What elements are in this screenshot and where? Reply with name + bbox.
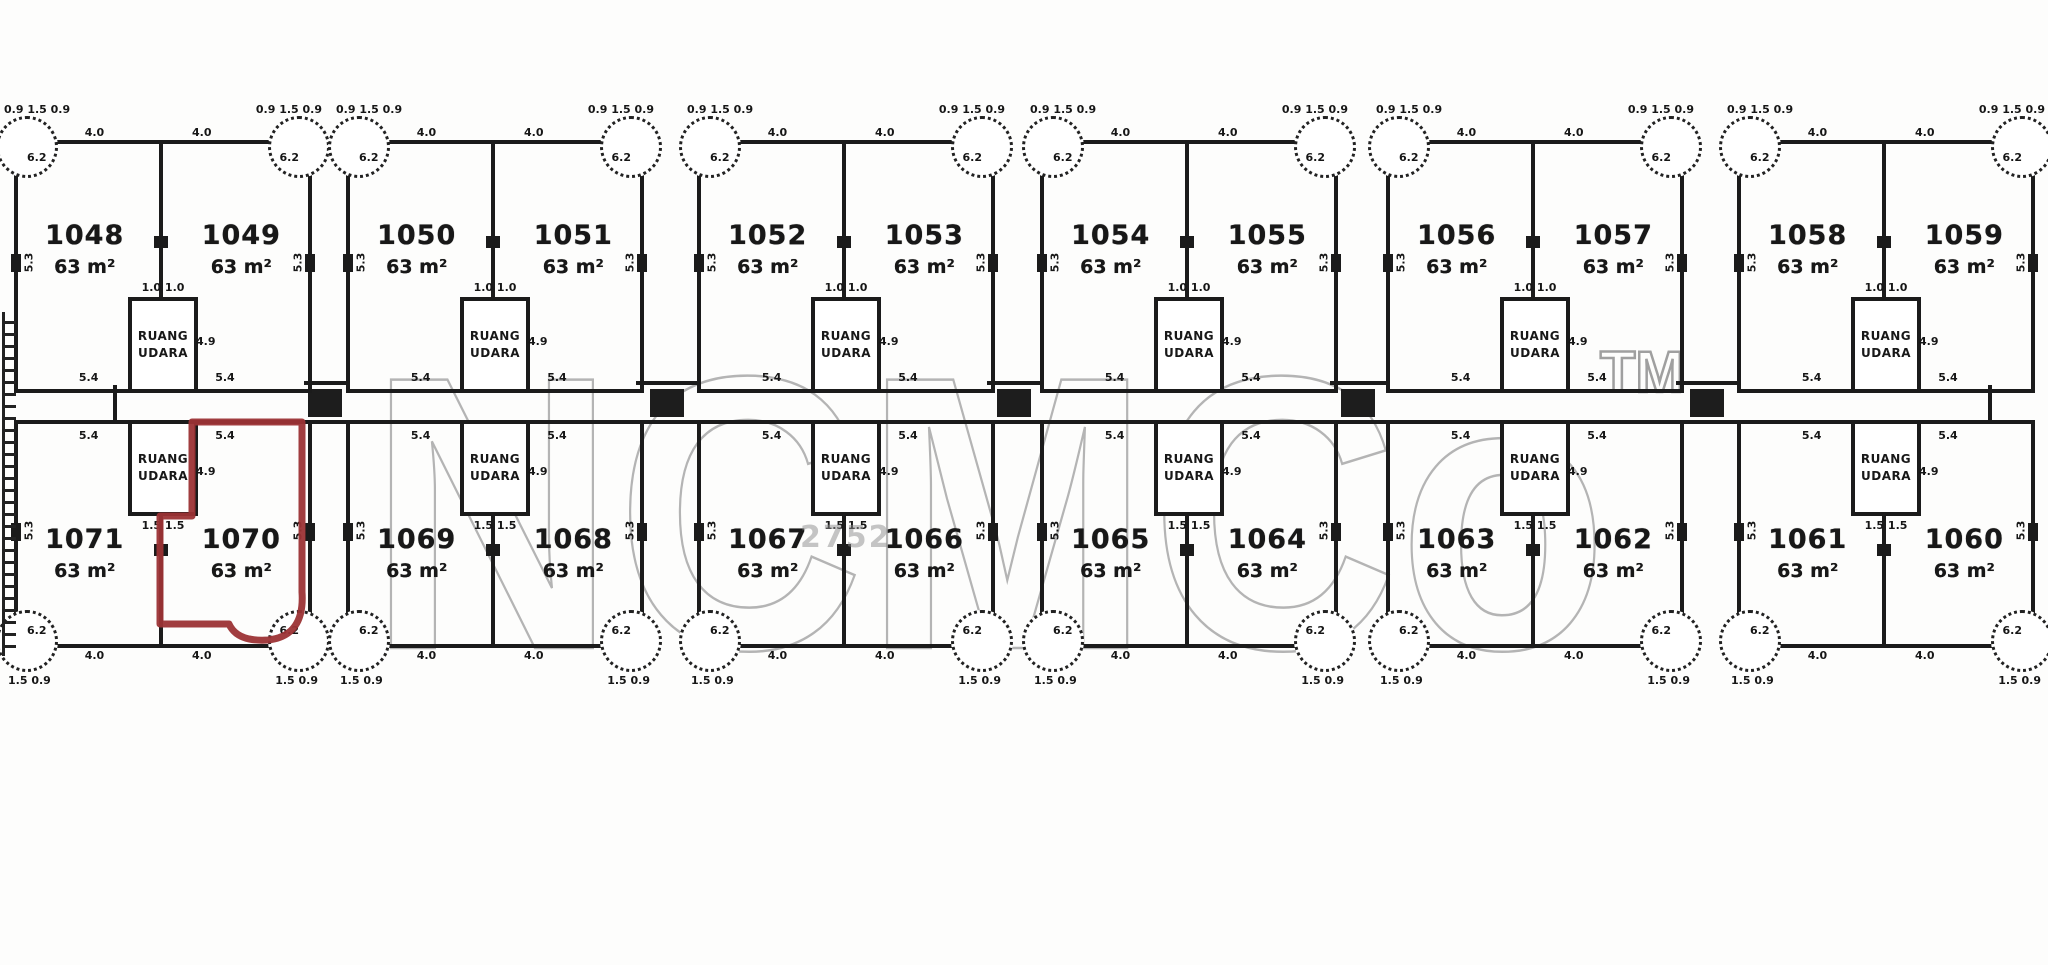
corner-survey-notch: [1991, 610, 2048, 672]
plot-number: 1052: [701, 220, 834, 251]
party-wall-tick: [1180, 236, 1194, 248]
dimension-label: 4.0: [85, 127, 105, 138]
dimension-label: 4.9: [1222, 336, 1242, 347]
party-wall-tick: [1526, 544, 1540, 556]
dimension-label: 4.0: [1915, 127, 1935, 138]
dimension-label: 0.9 1.5 0.9: [4, 104, 70, 115]
dimension-label: 5.4: [1105, 372, 1125, 383]
corner-survey-notch: [1022, 610, 1084, 672]
plot-area: 63 m²: [1390, 256, 1523, 278]
plot-pair: 0.9 1.5 0.9 0.9 1.5 0.9 1.5 0.9 1.5 0.9 …: [14, 140, 312, 393]
dimension-label: 4.0: [524, 127, 544, 138]
air-space-label-line1: RUANG: [138, 328, 188, 345]
plot-number: 1063: [1390, 524, 1523, 555]
dimension-label: 1.5 0.9: [8, 675, 51, 686]
plot-number: 1067: [701, 524, 834, 555]
party-wall-tick: [837, 544, 851, 556]
dimension-label: 1.5 0.9: [275, 675, 318, 686]
plot-number: 1062: [1547, 524, 1680, 555]
dimension-label: 5.4: [1105, 430, 1125, 441]
dimension-label: 6.2: [1750, 152, 1770, 163]
party-wall-line: [491, 516, 495, 644]
dimension-label: 1.5 0.9: [691, 675, 734, 686]
dimension-label: 4.0: [1564, 650, 1584, 661]
corner-survey-notch: [1719, 116, 1781, 178]
dimension-label: 6.2: [359, 625, 379, 636]
corner-survey-notch: [268, 116, 330, 178]
air-space-label-line2: UDARA: [1861, 468, 1911, 485]
plot-area: 63 m²: [1741, 560, 1874, 582]
dimension-label: 5.4: [1587, 430, 1607, 441]
plot-area: 63 m²: [1547, 560, 1680, 582]
air-space-label-line2: UDARA: [821, 468, 871, 485]
dimension-label: 0.9 1.5 0.9: [1376, 104, 1442, 115]
dimension-label: 5.4: [898, 430, 918, 441]
dimension-label: 6.2: [710, 625, 730, 636]
plot-pair: 0.9 1.5 0.9 0.9 1.5 0.9 1.5 0.9 1.5 0.9 …: [1737, 420, 2035, 648]
highlight-path: [160, 422, 302, 640]
air-space-label-line1: RUANG: [1164, 328, 1214, 345]
dimension-label: 5.4: [215, 372, 235, 383]
plot-pair: 0.9 1.5 0.9 0.9 1.5 0.9 1.5 0.9 1.5 0.9 …: [346, 140, 644, 393]
dimension-label: 1.0 1.0: [142, 282, 185, 293]
plot-number: 1056: [1390, 220, 1523, 251]
dimension-label: 1.5 0.9: [340, 675, 383, 686]
party-wall-tick: [1877, 544, 1891, 556]
dimension-label: 5.4: [1938, 372, 1958, 383]
dimension-label: 5.4: [1241, 372, 1261, 383]
dimension-label: 4.0: [1218, 650, 1238, 661]
corner-survey-notch: [951, 116, 1013, 178]
party-wall-line: [491, 144, 495, 297]
plot-number: 1060: [1898, 524, 2031, 555]
dimension-label: 4.0: [1111, 127, 1131, 138]
party-wall-tick: [486, 544, 500, 556]
air-space-label-line2: UDARA: [1510, 345, 1560, 362]
dimension-label: 4.0: [417, 650, 437, 661]
air-space-label-line2: UDARA: [138, 345, 188, 362]
dimension-label: 4.0: [1457, 650, 1477, 661]
dimension-label: 1.0 1.0: [1168, 282, 1211, 293]
dimension-label: 6.2: [1399, 152, 1419, 163]
dimension-label: 5.4: [1802, 430, 1822, 441]
dimension-label: 6.2: [1306, 152, 1326, 163]
dimension-label: 5.4: [1587, 372, 1607, 383]
party-wall-tick: [154, 236, 168, 248]
dimension-label: 6.2: [963, 625, 983, 636]
dimension-label: 4.0: [1218, 127, 1238, 138]
dimension-label: 5.4: [1451, 430, 1471, 441]
plot-pair: 0.9 1.5 0.9 0.9 1.5 0.9 1.5 0.9 1.5 0.9 …: [1737, 140, 2035, 393]
air-space-label-line2: UDARA: [1164, 468, 1214, 485]
dimension-label: 5.4: [1802, 372, 1822, 383]
dimension-label: 6.2: [1652, 625, 1672, 636]
dimension-label: 5.4: [762, 430, 782, 441]
air-space-label-line1: RUANG: [1164, 451, 1214, 468]
plot-pair: 0.9 1.5 0.9 0.9 1.5 0.9 1.5 0.9 1.5 0.9 …: [1040, 140, 1338, 393]
air-space-box: RUANG UDARA: [811, 420, 881, 516]
dimension-label: 4.9: [1919, 336, 1939, 347]
party-wall-line: [842, 516, 846, 644]
party-wall-tick: [837, 236, 851, 248]
dimension-label: 6.2: [2003, 625, 2023, 636]
dimension-label: 6.2: [1053, 152, 1073, 163]
dimension-label: 1.0 1.0: [1865, 282, 1908, 293]
dimension-label: 0.9 1.5 0.9: [939, 104, 1005, 115]
dimension-label: 4.9: [1568, 466, 1588, 477]
party-wall-line: [159, 144, 163, 297]
dimension-label: 4.9: [528, 466, 548, 477]
dimension-label: 6.2: [27, 152, 47, 163]
dimension-label: 1.5 0.9: [607, 675, 650, 686]
dimension-label: 1.0 1.0: [1514, 282, 1557, 293]
plot-area: 63 m²: [858, 560, 991, 582]
dimension-label: 1.5 0.9: [958, 675, 1001, 686]
dimension-label: 4.9: [1222, 466, 1242, 477]
plot-number: 1065: [1044, 524, 1177, 555]
air-space-label-line2: UDARA: [1510, 468, 1560, 485]
dimension-label: 4.0: [1915, 650, 1935, 661]
dimension-label: 5.4: [762, 372, 782, 383]
air-space-label-line1: RUANG: [1861, 328, 1911, 345]
air-space-label-line2: UDARA: [1861, 345, 1911, 362]
dimension-label: 1.5 0.9: [1998, 675, 2041, 686]
corner-survey-notch: [600, 116, 662, 178]
party-wall-line: [1531, 144, 1535, 297]
dimension-label: 6.2: [612, 625, 632, 636]
dimension-label: 0.9 1.5 0.9: [1727, 104, 1793, 115]
corner-survey-notch: [1022, 116, 1084, 178]
air-space-label-line2: UDARA: [470, 345, 520, 362]
plot-area: 63 m²: [507, 256, 640, 278]
dimension-label: 1.5 0.9: [1301, 675, 1344, 686]
air-space-box: RUANG UDARA: [1154, 420, 1224, 516]
dimension-label: 5.4: [898, 372, 918, 383]
dimension-label: 1.0 1.0: [474, 282, 517, 293]
plot-number: 1057: [1547, 220, 1680, 251]
dimension-label: 4.9: [528, 336, 548, 347]
dimension-label: 1.0 1.0: [825, 282, 868, 293]
air-space-label-line2: UDARA: [470, 468, 520, 485]
dimension-label: 5.4: [547, 372, 567, 383]
plot-number: 1054: [1044, 220, 1177, 251]
plot-area: 63 m²: [1390, 560, 1523, 582]
dimension-label: 4.0: [524, 650, 544, 661]
dimension-label: 4.0: [417, 127, 437, 138]
plot-area: 63 m²: [350, 256, 483, 278]
corner-survey-notch: [951, 610, 1013, 672]
plot-number: 1050: [350, 220, 483, 251]
air-space-box: RUANG UDARA: [1851, 420, 1921, 516]
party-wall-tick: [486, 236, 500, 248]
dimension-label: 6.2: [1306, 625, 1326, 636]
dimension-label: 0.9 1.5 0.9: [1282, 104, 1348, 115]
air-space-box: RUANG UDARA: [128, 297, 198, 393]
dimension-label: 4.9: [1919, 466, 1939, 477]
air-space-box: RUANG UDARA: [1500, 420, 1570, 516]
corner-survey-notch: [1640, 116, 1702, 178]
dimension-label: 4.9: [196, 336, 216, 347]
plot-pair: 0.9 1.5 0.9 0.9 1.5 0.9 1.5 0.9 1.5 0.9 …: [1386, 420, 1684, 648]
plot-number: 1053: [858, 220, 991, 251]
plot-area: 63 m²: [1898, 560, 2031, 582]
dimension-label: 6.2: [1399, 625, 1419, 636]
plot-number: 1066: [858, 524, 991, 555]
dimension-label: 5.4: [411, 430, 431, 441]
plot-area: 63 m²: [858, 256, 991, 278]
dimension-label: 4.0: [1808, 650, 1828, 661]
party-wall-tick: [1526, 236, 1540, 248]
dimension-label: 4.0: [875, 127, 895, 138]
plot-number: 1069: [350, 524, 483, 555]
dimension-label: 5.4: [1938, 430, 1958, 441]
dimension-label: 5.4: [411, 372, 431, 383]
corner-survey-notch: [1294, 610, 1356, 672]
plot-area: 63 m²: [507, 560, 640, 582]
air-space-label-line1: RUANG: [470, 328, 520, 345]
plot-area: 63 m²: [1741, 256, 1874, 278]
plot-number: 1068: [507, 524, 640, 555]
corner-survey-notch: [1991, 116, 2048, 178]
plot-area: 63 m²: [1201, 560, 1334, 582]
corner-survey-notch: [0, 116, 58, 178]
plot-area: 63 m²: [1201, 256, 1334, 278]
party-wall-line: [1185, 516, 1189, 644]
plot-pair: 0.9 1.5 0.9 0.9 1.5 0.9 1.5 0.9 1.5 0.9 …: [697, 140, 995, 393]
dimension-label: 4.9: [879, 336, 899, 347]
plot-area: 63 m²: [350, 560, 483, 582]
dimension-label: 0.9 1.5 0.9: [1979, 104, 2045, 115]
dimension-label: 1.5 0.9: [1034, 675, 1077, 686]
dimension-label: 4.9: [879, 466, 899, 477]
dimension-label: 6.2: [612, 152, 632, 163]
plot-pair: 0.9 1.5 0.9 0.9 1.5 0.9 1.5 0.9 1.5 0.9 …: [1386, 140, 1684, 393]
dimension-label: 5.4: [547, 430, 567, 441]
air-space-box: RUANG UDARA: [460, 297, 530, 393]
dimension-label: 0.9 1.5 0.9: [588, 104, 654, 115]
dimension-label: 5.4: [1451, 372, 1471, 383]
corner-survey-notch: [679, 610, 741, 672]
air-space-box: RUANG UDARA: [1851, 297, 1921, 393]
corner-survey-notch: [600, 610, 662, 672]
plot-area: 63 m²: [1044, 560, 1177, 582]
dimension-label: 0.9 1.5 0.9: [256, 104, 322, 115]
corner-survey-notch: [328, 610, 390, 672]
corner-survey-notch: [679, 116, 741, 178]
corner-survey-notch: [1368, 610, 1430, 672]
air-space-box: RUANG UDARA: [1154, 297, 1224, 393]
site-plan-canvas: NCMCo TM 0.9 1.5 0.9 0.9 1.5 0.9 1.5 0.9…: [0, 0, 2048, 965]
dimension-label: 5.4: [1241, 430, 1261, 441]
air-space-label-line1: RUANG: [821, 451, 871, 468]
dimension-label: 4.0: [192, 127, 212, 138]
air-space-label-line1: RUANG: [1861, 451, 1911, 468]
plot-number: 1061: [1741, 524, 1874, 555]
dimension-label: 5.4: [79, 372, 99, 383]
dimension-label: 4.0: [768, 127, 788, 138]
party-wall-tick: [1180, 544, 1194, 556]
dimension-label: 1.5 0.9: [1647, 675, 1690, 686]
dimension-label: 6.2: [1652, 152, 1672, 163]
party-wall-tick: [1877, 236, 1891, 248]
dimension-label: 4.0: [1808, 127, 1828, 138]
dimension-label: 6.2: [1750, 625, 1770, 636]
dimension-label: 4.0: [768, 650, 788, 661]
plot-pair: 0.9 1.5 0.9 0.9 1.5 0.9 1.5 0.9 1.5 0.9 …: [1040, 420, 1338, 648]
plot-area: 63 m²: [1044, 256, 1177, 278]
plot-pair: 0.9 1.5 0.9 0.9 1.5 0.9 1.5 0.9 1.5 0.9 …: [697, 420, 995, 648]
air-space-label-line1: RUANG: [821, 328, 871, 345]
plot-number: 1059: [1898, 220, 2031, 251]
air-space-label-line1: RUANG: [1510, 451, 1560, 468]
party-wall-line: [1531, 516, 1535, 644]
dimension-label: 6.2: [710, 152, 730, 163]
air-space-label-line1: RUANG: [1510, 328, 1560, 345]
dimension-label: 0.9 1.5 0.9: [336, 104, 402, 115]
air-space-box: RUANG UDARA: [811, 297, 881, 393]
corner-survey-notch: [1719, 610, 1781, 672]
party-wall-line: [842, 144, 846, 297]
corner-survey-notch: [1640, 610, 1702, 672]
air-space-label-line2: UDARA: [1164, 345, 1214, 362]
dimension-label: 6.2: [1053, 625, 1073, 636]
dimension-label: 6.2: [963, 152, 983, 163]
plot-number: 1064: [1201, 524, 1334, 555]
air-space-label-line1: RUANG: [470, 451, 520, 468]
corner-survey-notch: [1368, 116, 1430, 178]
air-space-label-line2: UDARA: [821, 345, 871, 362]
dimension-label: 0.9 1.5 0.9: [687, 104, 753, 115]
dimension-label: 4.0: [1111, 650, 1131, 661]
corner-survey-notch: [328, 116, 390, 178]
plot-number: 1049: [175, 220, 308, 251]
dimension-label: 4.9: [1568, 336, 1588, 347]
plot-area: 63 m²: [701, 560, 834, 582]
dimension-label: 4.0: [1564, 127, 1584, 138]
plot-pair: 0.9 1.5 0.9 0.9 1.5 0.9 1.5 0.9 1.5 0.9 …: [346, 420, 644, 648]
dimension-label: 1.5 0.9: [1380, 675, 1423, 686]
plot-number: 1051: [507, 220, 640, 251]
plot-number: 1055: [1201, 220, 1334, 251]
dimension-label: 4.0: [1457, 127, 1477, 138]
plot-number: 1048: [18, 220, 151, 251]
dimension-label: 0.9 1.5 0.9: [1628, 104, 1694, 115]
party-wall-line: [1882, 516, 1886, 644]
dimension-label: 6.2: [280, 152, 300, 163]
air-space-box: RUANG UDARA: [1500, 297, 1570, 393]
dimension-label: 4.0: [875, 650, 895, 661]
plot-number: 1058: [1741, 220, 1874, 251]
plot-area: 63 m²: [1898, 256, 2031, 278]
air-space-box: RUANG UDARA: [460, 420, 530, 516]
plot-area: 63 m²: [1547, 256, 1680, 278]
dimension-label: 1.5 0.9: [1731, 675, 1774, 686]
corner-survey-notch: [1294, 116, 1356, 178]
plot-area: 63 m²: [701, 256, 834, 278]
party-wall-line: [1185, 144, 1189, 297]
plot-area: 63 m²: [175, 256, 308, 278]
plot-area: 63 m²: [18, 256, 151, 278]
dimension-label: 6.2: [359, 152, 379, 163]
dimension-label: 0.9 1.5 0.9: [1030, 104, 1096, 115]
selected-plot-outline-1070: [6, 412, 316, 672]
party-wall-line: [1882, 144, 1886, 297]
dimension-label: 6.2: [2003, 152, 2023, 163]
